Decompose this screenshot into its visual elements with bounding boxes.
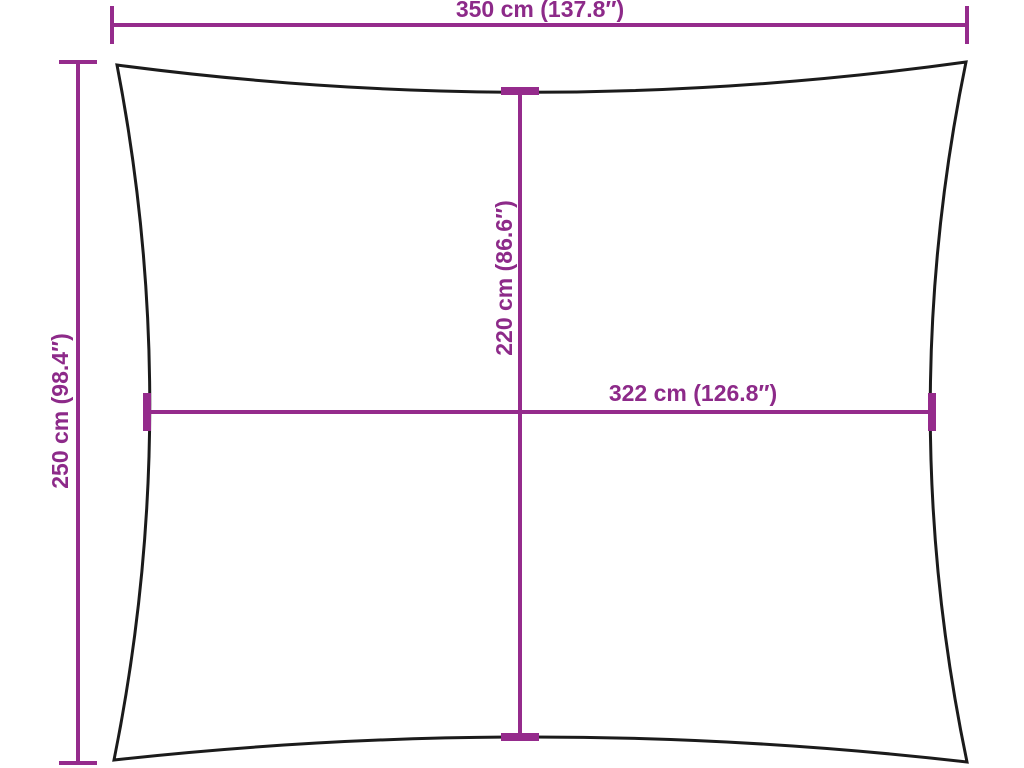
inner-horizontal-tick-left <box>143 393 151 431</box>
left-dimension-tick-bottom <box>59 761 97 765</box>
top-dimension-label: 350 cm (137.8″) <box>112 0 968 21</box>
left-dimension-line <box>76 62 80 765</box>
inner-horizontal-tick-right <box>928 393 936 431</box>
inner-vertical-line <box>518 91 522 737</box>
inner-horizontal-label: 322 cm (126.8″) <box>518 381 868 405</box>
inner-horizontal-line <box>147 410 932 414</box>
left-dimension-label: 250 cm (98.4″) <box>48 281 72 541</box>
inner-vertical-label: 220 cm (86.6″) <box>492 148 516 408</box>
dimension-diagram: 350 cm (137.8″) 250 cm (98.4″) 220 cm (8… <box>0 0 1024 768</box>
top-dimension-line <box>112 23 968 27</box>
left-dimension-tick-top <box>59 60 97 64</box>
inner-vertical-tick-top <box>501 87 539 95</box>
inner-vertical-tick-bottom <box>501 733 539 741</box>
